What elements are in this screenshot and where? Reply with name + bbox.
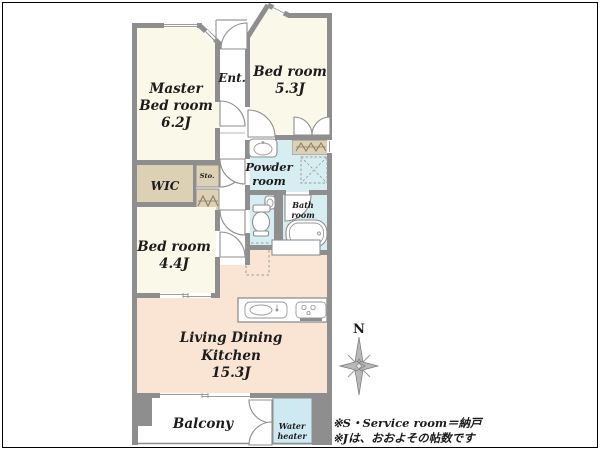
balcony-side-wall <box>132 426 138 445</box>
wall-segment <box>215 128 220 162</box>
wall-segment <box>215 257 220 298</box>
water-heater-label-1: Water <box>279 421 306 431</box>
balcony-side-wall <box>312 398 332 445</box>
master-bedroom-label-2: Bed room <box>138 98 213 114</box>
wall-segment <box>132 23 164 28</box>
wall-segment <box>327 13 332 398</box>
entrance-door-arc <box>221 23 247 49</box>
toilet-icon <box>253 205 271 236</box>
sliding-window <box>160 393 250 398</box>
bedroom-3-size: 4.4J <box>159 256 190 272</box>
window <box>164 23 197 28</box>
entrance-label: Ent. <box>217 71 246 85</box>
ldk-size: 15.3J <box>211 365 252 381</box>
water-heater-label-2: heater <box>277 431 307 441</box>
powder-room-label-2: room <box>252 174 286 188</box>
wall-segment <box>245 185 250 210</box>
grill-handle <box>300 319 322 322</box>
bedroom-2-label: Bed room <box>252 64 327 80</box>
wall-segment <box>132 23 137 398</box>
wall-segment <box>275 135 332 140</box>
note-line-1: ※S・Service room＝納戸 <box>333 416 484 430</box>
bedroom-3-label: Bed room <box>136 239 211 255</box>
ldk-label-2: Kitchen <box>200 348 261 364</box>
bedroom-2-size: 5.3J <box>275 81 306 97</box>
wall-segment <box>250 393 332 398</box>
floor-plan-page: N Master Bed room 6.2J Ent. Bed room 5.3… <box>0 0 600 450</box>
bath-room-label-1: Bath <box>291 200 314 210</box>
bath-room-label-2: room <box>291 210 314 220</box>
wall-segment <box>137 202 196 207</box>
powder-sink-icon <box>249 139 277 157</box>
master-bedroom-size: 6.2J <box>161 115 192 131</box>
wall-segment <box>137 293 160 298</box>
wall-segment <box>137 160 220 165</box>
wall-segment <box>215 210 220 231</box>
wall-segment <box>288 13 332 18</box>
wall-segment <box>309 190 332 195</box>
balcony-side-wall <box>132 398 152 426</box>
master-bedroom-label-1: Master <box>148 81 203 97</box>
footnotes: ※S・Service room＝納戸 ※Jは、おおよその帖数です <box>333 416 484 445</box>
balcony-label: Balcony <box>172 416 234 432</box>
compass-center <box>357 364 361 368</box>
kitchen-cabinet <box>272 240 320 255</box>
compass: N <box>340 322 378 395</box>
sliding-window <box>160 293 211 298</box>
bedroom-2-closet-floor <box>292 140 328 155</box>
storage-label: Sto. <box>200 172 215 180</box>
wall-segment <box>193 165 196 202</box>
wic-label: WIC <box>151 179 180 193</box>
note-line-2: ※Jは、おおよその帖数です <box>333 431 476 445</box>
wall-segment <box>211 293 220 298</box>
powder-room-label-1: Powder <box>244 160 293 174</box>
north-label: N <box>353 322 365 337</box>
wall-segment <box>137 393 160 398</box>
ldk-label-1: Living Dining <box>179 330 283 346</box>
wall-segment <box>245 190 283 195</box>
floor-plan-drawing: N Master Bed room 6.2J Ent. Bed room 5.3… <box>0 0 600 450</box>
wall-segment <box>283 190 286 195</box>
